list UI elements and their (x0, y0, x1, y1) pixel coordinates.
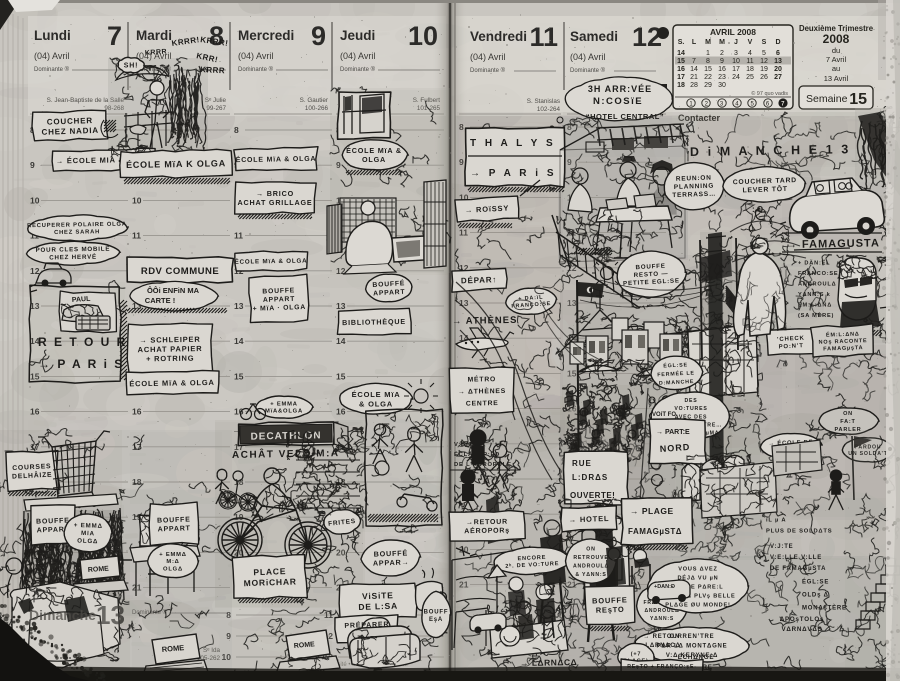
svg-text:9: 9 (311, 21, 326, 51)
svg-text:+DAN:Ɖ: +DAN:Ɖ (654, 584, 675, 590)
svg-text:(04) Avril: (04) Avril (570, 52, 605, 62)
svg-text:DES: DES (684, 398, 697, 404)
svg-text:(04) Avril: (04) Avril (34, 51, 69, 61)
svg-text:CHEZ HERVÉ: CHEZ HERVÉ (49, 253, 97, 262)
svg-text:ÉCOLE MïA & OLGA: ÉCOLE MïA & OLGA (129, 378, 215, 388)
svg-text:7: 7 (692, 58, 696, 65)
svg-text:LΔRNΔCΔ: LΔRNΔCΔ (645, 643, 680, 649)
svg-text:18: 18 (677, 82, 685, 89)
svg-text:8: 8 (234, 125, 239, 135)
svg-text:ANDROULΔ: ANDROULΔ (573, 564, 609, 570)
svg-text:ÉCOLE MïA: ÉCOLE MïA (352, 390, 401, 399)
svg-text:21: 21 (690, 74, 698, 81)
svg-text:S.: S. (678, 39, 685, 46)
svg-text:ÉCOLE MïA & OLGA: ÉCOLE MïA & OLGA (235, 257, 308, 266)
svg-text:PLACE: PLACE (253, 566, 286, 577)
svg-text:11: 11 (234, 231, 243, 241)
svg-text:10: 10 (30, 195, 40, 205)
svg-text:MONΔşTÈRE: MONΔşTÈRE (802, 604, 847, 612)
svg-text:ViSiTE: ViSiTE (362, 590, 394, 601)
svg-text:Mercredi: Mercredi (238, 28, 294, 43)
svg-text:15: 15 (234, 371, 244, 381)
svg-text:→ P A R i S: → P A R i S (38, 357, 124, 371)
svg-text:& YΔNN:S: & YΔNN:S (575, 572, 606, 578)
svg-text:28: 28 (690, 82, 698, 89)
svg-text:25: 25 (746, 74, 754, 81)
svg-text:BOUFFE: BOUFFE (157, 516, 191, 524)
svg-text:30: 30 (718, 82, 726, 89)
svg-text:V:J:TE: V:J:TE (770, 544, 793, 550)
svg-text:M:Δ: M:Δ (166, 559, 179, 565)
svg-text:CARTE !: CARTE ! (145, 296, 175, 305)
svg-text:27: 27 (774, 74, 782, 81)
svg-text:FRANCO:SE: FRANCO:SE (798, 271, 838, 277)
svg-text:→ PLAGE: → PLAGE (630, 506, 674, 516)
svg-text:OLGA: OLGA (362, 155, 386, 164)
svg-text:9: 9 (720, 58, 724, 65)
svg-text:DÉPAR↑: DÉPAR↑ (461, 275, 498, 285)
svg-text:& OLGA: & OLGA (359, 399, 393, 408)
svg-text:15: 15 (677, 58, 685, 65)
svg-text:+ EMMΔ: + EMMΔ (159, 552, 187, 558)
svg-text:M: M (719, 39, 725, 46)
svg-text:23: 23 (718, 74, 726, 81)
svg-text:PLANNING: PLANNING (674, 183, 715, 191)
svg-text:COUCHER: COUCHER (47, 116, 93, 127)
svg-text:12: 12 (632, 22, 662, 52)
svg-text:6: 6 (776, 50, 780, 57)
svg-text:M: M (705, 39, 711, 46)
svg-text:© 97 quo vadis: © 97 quo vadis (751, 90, 788, 97)
svg-text:Sᵉ Julie: Sᵉ Julie (205, 97, 227, 104)
svg-text:19: 19 (760, 66, 768, 73)
svg-text:14: 14 (677, 50, 685, 57)
svg-text:ÉCOLE MïA K OLGA: ÉCOLE MïA K OLGA (126, 158, 226, 170)
svg-text:FAMAGµSTΔ: FAMAGµSTΔ (628, 527, 682, 536)
svg-text:15: 15 (849, 91, 867, 108)
svg-text:(04) Avril: (04) Avril (470, 52, 505, 62)
svg-text:S. Gautier: S. Gautier (300, 97, 328, 104)
svg-text:YΔNN:S: YΔNN:S (650, 616, 674, 622)
svg-text:+ DÄN:ËL: + DÄN:ËL (798, 260, 830, 267)
svg-text:→ ATHÈNES: → ATHÈNES (452, 315, 518, 327)
svg-text:13: 13 (96, 600, 125, 630)
svg-text:S: S (762, 39, 767, 46)
svg-text:SH!: SH! (124, 62, 138, 69)
svg-text:VΔRNΔVΔS: VΔRNΔVΔS (781, 626, 822, 633)
svg-text:ΔPOşTOLOş: ΔPOşTOLOş (780, 616, 825, 623)
svg-text:Samedi: Samedi (570, 29, 618, 44)
svg-text:17: 17 (732, 66, 740, 73)
svg-text:→: → (232, 425, 242, 436)
svg-text:RDV COMMUNE: RDV COMMUNE (141, 266, 219, 277)
svg-text:10: 10 (132, 195, 142, 205)
svg-text:Dimanche: Dimanche (29, 607, 96, 623)
svg-text:APPAR→: APPAR→ (373, 557, 410, 567)
svg-text:13: 13 (336, 301, 346, 311)
svg-text:+ EMMA: + EMMA (270, 401, 298, 407)
svg-text:13 Avril: 13 Avril (824, 74, 849, 83)
svg-text:10: 10 (408, 21, 438, 51)
svg-text:PAUL: PAUL (72, 296, 92, 304)
svg-text:Dominante ®: Dominante ® (340, 66, 376, 73)
svg-text:REUN:ON: REUN:ON (676, 175, 712, 183)
svg-text:RETROUVE: RETROUVE (573, 555, 608, 561)
svg-text:KRRR: KRRR (200, 65, 226, 75)
svg-text:7: 7 (107, 21, 122, 51)
svg-text:ÉCOLE MïA &: ÉCOLE MïA & (346, 146, 402, 155)
svg-text:16: 16 (30, 407, 40, 417)
svg-text:L: L (692, 39, 697, 46)
svg-text:BIBLIOTHÈQUE: BIBLIOTHÈQUE (342, 317, 406, 327)
svg-text:11: 11 (132, 231, 141, 241)
svg-text:PLUS DE SOLDΔTS: PLUS DE SOLDΔTS (766, 529, 832, 535)
svg-text:Dominante ®: Dominante ® (570, 67, 606, 74)
svg-text:BOUFF: BOUFF (424, 609, 449, 615)
svg-text:12: 12 (760, 58, 768, 65)
svg-text:3: 3 (734, 50, 738, 57)
svg-text:ON: ON (843, 411, 853, 417)
svg-text:Jeudi: Jeudi (340, 28, 375, 43)
svg-text:REşTO: REşTO (596, 605, 625, 615)
svg-text:→ BRICO: → BRICO (256, 189, 294, 198)
svg-text:102-264: 102-264 (537, 106, 561, 113)
svg-text:YΔNN:S k: YΔNN:S k (798, 292, 831, 298)
svg-text:29: 29 (704, 82, 712, 89)
svg-text:CENTRE: CENTRE (466, 400, 499, 408)
svg-text:MïA&OLGA: MïA&OLGA (265, 409, 303, 415)
svg-text:ACHAT GRILLAGE: ACHAT GRILLAGE (238, 198, 313, 207)
svg-text:Mardi: Mardi (136, 28, 172, 43)
svg-text:2008: 2008 (823, 32, 850, 46)
svg-text:19→: 19→ (318, 511, 333, 518)
svg-text:Dominante ®: Dominante ® (238, 66, 274, 73)
svg-text:15: 15 (704, 66, 712, 73)
svg-text:14: 14 (690, 66, 698, 73)
svg-text:T H A L Y S: T H A L Y S (470, 138, 556, 149)
svg-text:J: J (734, 39, 738, 46)
svg-text:→ LΔRNΔCΔ: → LΔRNΔCΔ (520, 657, 577, 668)
svg-text:12: 12 (30, 266, 40, 276)
svg-text:ROME: ROME (88, 566, 110, 574)
svg-text:V: V (748, 39, 753, 46)
svg-text:20: 20 (774, 66, 782, 73)
svg-text:APPART: APPART (158, 525, 191, 533)
svg-text:Lundi: Lundi (34, 28, 71, 43)
svg-text:→ PART:E: → PART:E (656, 429, 690, 436)
svg-text:VO:TURES: VO:TURES (674, 406, 707, 412)
svg-text:POUR CLES MOBILE: POUR CLES MOBILE (36, 246, 111, 254)
svg-text:4: 4 (748, 50, 752, 57)
svg-text:+ ROTRING: + ROTRING (146, 354, 194, 364)
svg-text:ÉGL:SE: ÉGL:SE (802, 578, 829, 586)
svg-text:S. Stanislas: S. Stanislas (527, 98, 560, 105)
svg-text:BOUFFE: BOUFFE (262, 287, 295, 295)
svg-text:→ P A R i S: → P A R i S (470, 168, 557, 179)
svg-text:(04) Avril: (04) Avril (238, 51, 273, 61)
svg-text:VOiT FO: VOiT FO (652, 412, 676, 418)
svg-text:du: du (832, 46, 840, 55)
svg-text:D: D (775, 39, 780, 46)
svg-text:16: 16 (234, 407, 244, 417)
svg-text:DE FAMAGµSTA: DE FAMAGµSTA (770, 566, 826, 572)
svg-text:Vendredi: Vendredi (470, 29, 527, 44)
svg-text:13: 13 (774, 58, 782, 65)
svg-text:9: 9 (30, 160, 35, 170)
svg-text:11: 11 (529, 22, 558, 52)
svg-text:8: 8 (706, 58, 710, 65)
svg-text:14: 14 (336, 336, 346, 346)
svg-text:13: 13 (234, 301, 244, 311)
svg-text:Semaine: Semaine (806, 93, 848, 105)
svg-text:N:COSïE: N:COSïE (593, 96, 643, 107)
svg-text:ÔÔi ENFiN MA: ÔÔi ENFiN MA (147, 286, 200, 295)
svg-text:16: 16 (718, 66, 726, 73)
svg-text:(+7: (+7 (631, 651, 642, 657)
svg-text:26: 26 (760, 74, 768, 81)
svg-text:EşA: EşA (429, 617, 443, 623)
svg-text:ON: ON (586, 547, 595, 553)
svg-text:Dominante ®: Dominante ® (470, 67, 506, 74)
svg-text:24: 24 (732, 74, 740, 81)
svg-text:16: 16 (132, 407, 142, 417)
svg-text:APPART: APPART (263, 296, 296, 304)
svg-text:OLDş Δ: OLDş Δ (802, 593, 829, 599)
svg-text:14: 14 (234, 336, 244, 346)
svg-text:EM:L:ΔNΔ: EM:L:ΔNΔ (798, 303, 832, 309)
svg-text:AVRIL 2008: AVRIL 2008 (710, 27, 756, 37)
svg-text:(04) Avril: (04) Avril (340, 51, 375, 61)
svg-text:CHEZ SARAH: CHEZ SARAH (54, 229, 100, 236)
svg-text:16: 16 (336, 407, 346, 417)
svg-text:D i M A N C H E 1 3: D i M A N C H E 1 3 (690, 142, 851, 159)
svg-text:MORiCHAR: MORiCHAR (243, 576, 296, 588)
svg-text:RUE: RUE (572, 459, 592, 468)
svg-text:→ HOTEL: → HOTEL (569, 514, 610, 524)
svg-text:1: 1 (706, 50, 710, 57)
svg-text:“HOTEL CENTRAL”: “HOTEL CENTRAL” (586, 112, 664, 121)
svg-text:DE L:SA: DE L:SA (358, 601, 398, 612)
svg-text:R E T O U R: R E T O U R (38, 335, 127, 349)
svg-text:FA:T: FA:T (840, 419, 855, 425)
svg-text:3H ARR:VÉE: 3H ARR:VÉE (588, 84, 652, 94)
svg-text:17: 17 (677, 74, 685, 81)
svg-text:MïA: MïA (81, 530, 95, 537)
svg-text:NORD: NORD (659, 442, 690, 454)
svg-text:→ RETOUR: → RETOUR (643, 634, 682, 640)
svg-text:OUVERTE!: OUVERTE! (570, 491, 615, 500)
svg-text:7 Avril: 7 Avril (826, 55, 847, 64)
svg-text:OLGΔ: OLGΔ (163, 566, 183, 572)
svg-text:100-266: 100-266 (305, 105, 329, 112)
svg-text:Dominante ®: Dominante ® (34, 66, 70, 73)
svg-text:+ EMMΔ: + EMMΔ (74, 522, 103, 530)
svg-text:BOUFFE: BOUFFE (36, 517, 70, 525)
svg-text:10: 10 (732, 58, 740, 65)
svg-text:22: 22 (704, 74, 712, 81)
svg-text:5: 5 (762, 50, 766, 57)
svg-text:15: 15 (336, 371, 346, 381)
svg-text:ïL µ A: ïL µ A (765, 518, 786, 524)
svg-text:L:DRΔS: L:DRΔS (572, 473, 608, 482)
svg-text:OLGΔ: OLGΔ (77, 538, 98, 546)
svg-text:2: 2 (720, 50, 724, 57)
svg-text:18: 18 (746, 66, 754, 73)
svg-text:V:E:LLE V:LLE: V:E:LLE V:LLE (770, 555, 822, 561)
svg-text:99-267: 99-267 (206, 105, 226, 112)
svg-text:PLΔGE ØU MONDE!: PLΔGE ØU MONDE! (665, 603, 730, 609)
svg-text:(SA MÈRE): (SA MÈRE) (798, 311, 834, 319)
svg-text:16: 16 (677, 66, 685, 73)
svg-text:au: au (832, 64, 840, 73)
svg-text:11: 11 (746, 58, 753, 65)
svg-text:ANDROULΔ: ANDROULΔ (798, 282, 836, 288)
svg-text:VOUS ΔVEZ: VOUS ΔVEZ (678, 567, 718, 573)
svg-text:→RETOUR: →RETOUR (466, 519, 508, 527)
